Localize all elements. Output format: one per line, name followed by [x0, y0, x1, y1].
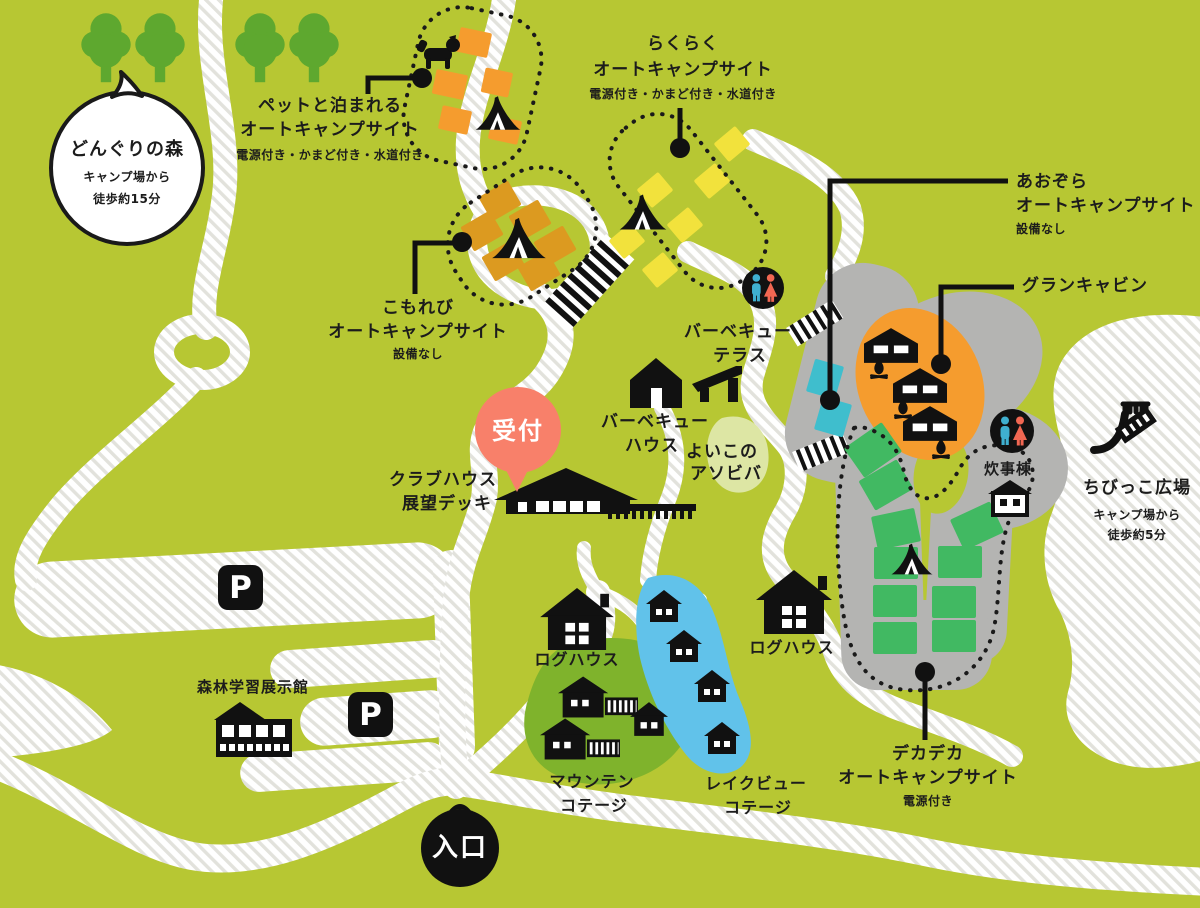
campground-map: どんぐりの森 キャンプ場から 徒歩約15分 ペットと泊まれる オートキャンプサイ… — [0, 0, 1200, 908]
bbq-house-icon — [630, 358, 682, 408]
log-house-right-label: ログハウス — [749, 638, 834, 658]
restroom-icon — [742, 267, 784, 309]
chibikko-sub1: キャンプ場から — [1093, 508, 1180, 523]
lakeview-cottage-label-2: コテージ — [724, 798, 792, 818]
bbq-terrace-label-2: テラス — [713, 346, 767, 367]
rakuraku-label-1: らくらく — [647, 34, 719, 55]
tree-icon — [135, 13, 184, 82]
log-house-icon — [540, 588, 614, 650]
forest-museum-icon — [214, 702, 292, 757]
aozora-amenities: 設備なし — [1016, 222, 1066, 237]
dekadeka-label-1: デカデカ — [892, 744, 964, 765]
entrance-label: 入口 — [432, 832, 488, 865]
tree-icon — [289, 13, 338, 82]
parking-icon: P — [218, 565, 263, 610]
bbq-house-label-2: ハウス — [625, 436, 679, 457]
roadside-hatch-wedge — [0, 664, 112, 758]
tree-icon — [235, 13, 284, 82]
donguri-forest-label: どんぐりの森 — [70, 139, 184, 162]
donguri-forest-sub1: キャンプ場から — [83, 170, 170, 185]
chibikko-label: ちびっこ広場 — [1083, 478, 1191, 499]
clubhouse-label-2: 展望デッキ — [402, 494, 492, 515]
aozora-label-1: あおぞら — [1016, 172, 1088, 193]
log-house-icon — [756, 570, 832, 634]
parking-icon: P — [348, 692, 393, 737]
komorebi-amenities: 設備なし — [393, 347, 443, 362]
yoiko-label-2: アソビバ — [690, 464, 762, 485]
dekadeka-label-2: オートキャンプサイト — [838, 768, 1018, 789]
restroom-icon — [990, 409, 1034, 453]
bbq-terrace-label-1: バーベキュー — [684, 322, 792, 343]
dog-icon — [416, 35, 460, 69]
clubhouse-label-1: クラブハウス — [389, 470, 497, 491]
komorebi-label-2: オートキャンプサイト — [328, 322, 508, 343]
reception-label: 受付 — [492, 416, 544, 446]
pet-site-label-1: ペットと泊まれる — [258, 96, 402, 117]
yoiko-label-1: よいこの — [686, 442, 758, 463]
pet-site-amenities: 電源付き・かまど付き・水道付き — [236, 148, 424, 163]
donguri-forest-sub2: 徒歩約15分 — [93, 192, 161, 207]
bbq-house-label-1: バーベキュー — [601, 412, 709, 433]
log-house-left-label: ログハウス — [534, 650, 619, 670]
aozora-label-2: オートキャンプサイト — [1016, 196, 1196, 217]
chibikko-sub2: 徒歩約5分 — [1108, 528, 1167, 543]
rakuraku-amenities: 電源付き・かまど付き・水道付き — [589, 87, 777, 102]
gran-cabin-label: グランキャビン — [1022, 276, 1148, 297]
pet-site-label-2: オートキャンプサイト — [240, 120, 420, 141]
komorebi-label-1: こもれび — [382, 298, 454, 319]
dekadeka-amenities: 電源付き — [903, 794, 953, 809]
mountain-cottage-label-2: コテージ — [560, 796, 628, 816]
rakuraku-label-2: オートキャンプサイト — [593, 60, 773, 81]
lakeview-cottage-label-1: レイクビュー — [705, 774, 807, 794]
forest-museum-label: 森林学習展示館 — [197, 678, 309, 697]
bbq-terrace-icon — [692, 366, 742, 402]
mountain-cottage-label-1: マウンテン — [549, 772, 634, 792]
cook-house-label: 炊事棟 — [984, 460, 1032, 479]
